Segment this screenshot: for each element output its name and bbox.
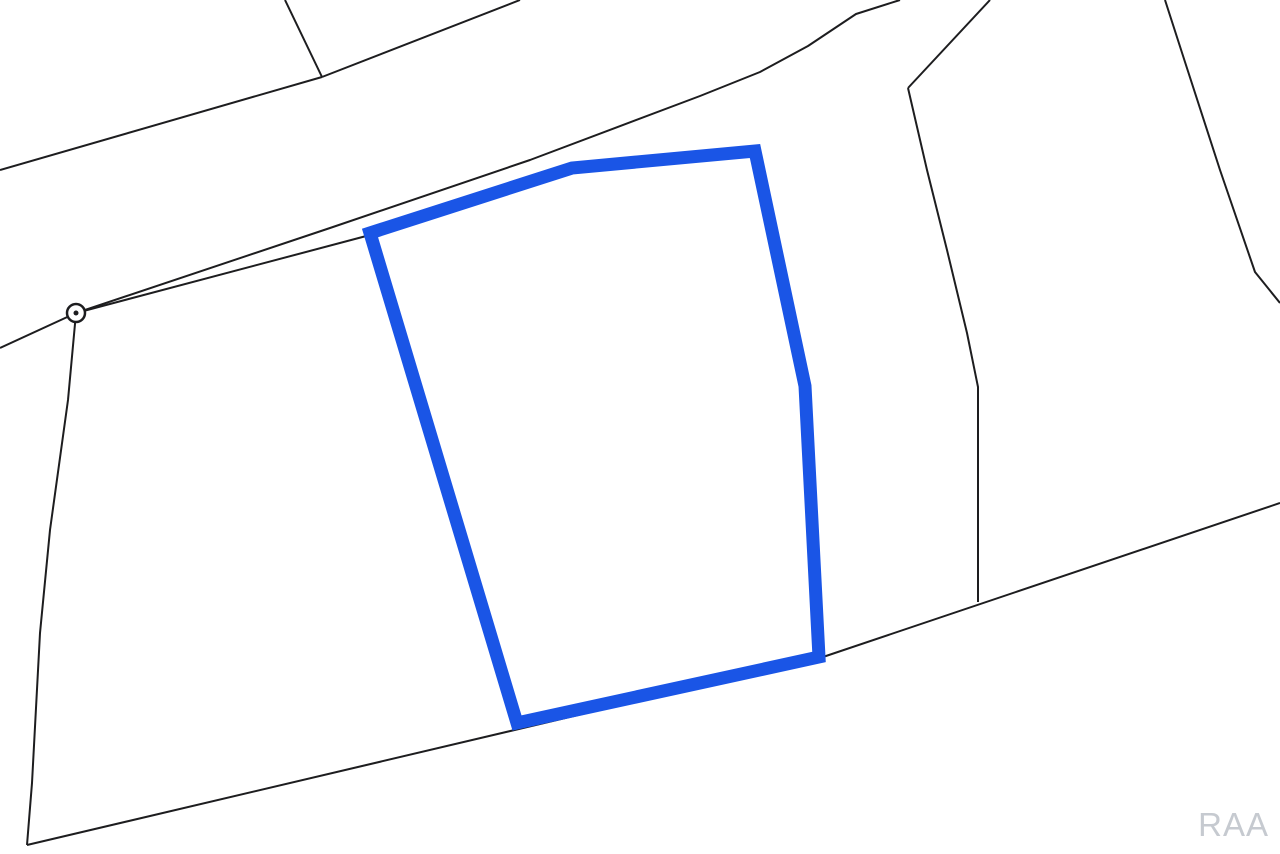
boundary-line-rear-boundary-diagonal [27, 503, 1280, 845]
highlighted-parcel-outline [370, 151, 819, 723]
boundary-line-road-lower-edge-north [908, 0, 990, 88]
boundary-line-west-boundary [27, 313, 76, 845]
boundary-line-middle-parcel-boundary [908, 88, 978, 602]
boundary-line-north-spur-left [285, 0, 322, 77]
boundary-line-northwest-boundary [0, 77, 322, 170]
boundary-line-east-parcel-boundary [1165, 0, 1280, 303]
boundary-line-road-lower-edge [76, 235, 370, 313]
parcel-map[interactable]: RAA [0, 0, 1280, 854]
survey-marker-dot [74, 311, 79, 316]
boundary-line-north-spur-right [322, 0, 520, 77]
map-canvas [0, 0, 1280, 854]
raa-watermark: RAA [1198, 808, 1269, 841]
